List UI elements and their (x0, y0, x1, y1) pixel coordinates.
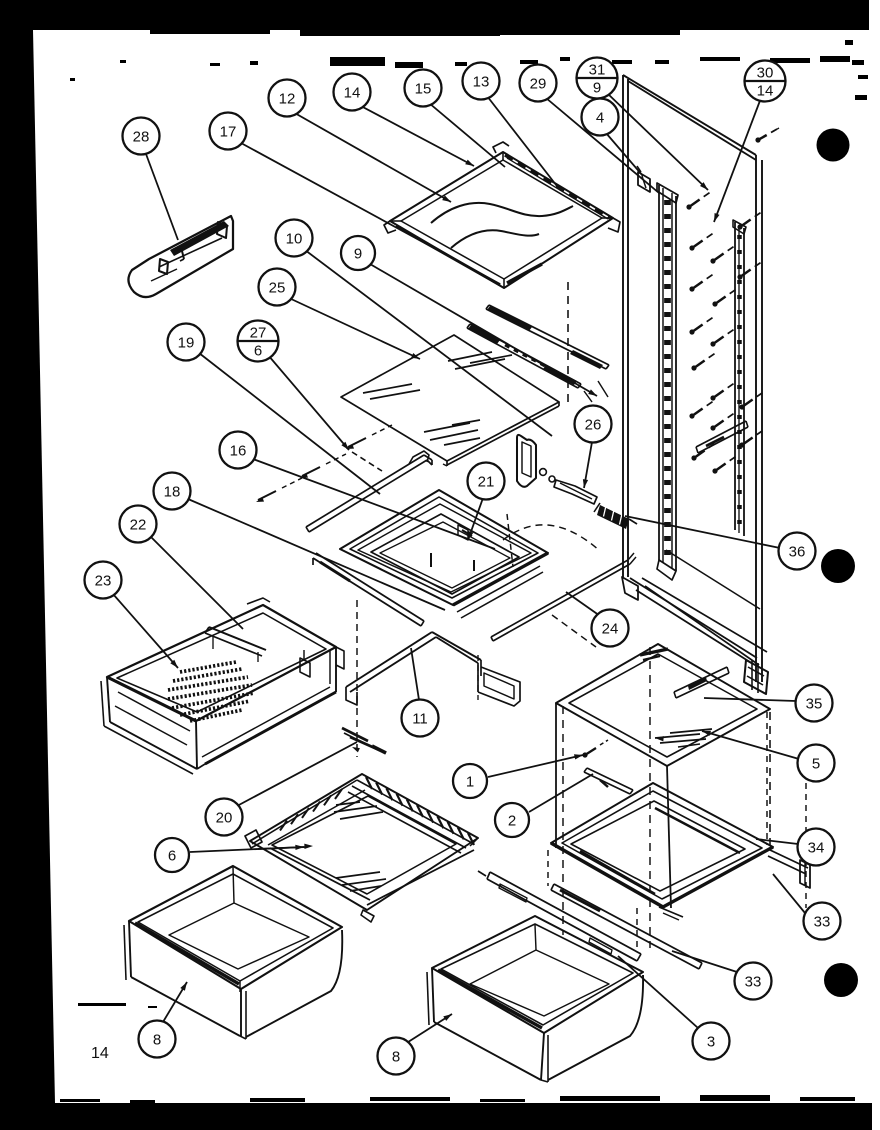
svg-text:10: 10 (286, 231, 303, 248)
svg-text:6: 6 (254, 343, 262, 360)
svg-text:14: 14 (344, 85, 361, 102)
svg-text:31: 31 (589, 62, 606, 79)
svg-text:18: 18 (164, 484, 181, 501)
svg-text:22: 22 (130, 517, 147, 534)
svg-text:27: 27 (250, 325, 267, 342)
svg-text:5: 5 (812, 756, 820, 773)
svg-text:12: 12 (279, 91, 296, 108)
svg-text:13: 13 (473, 74, 490, 91)
svg-text:26: 26 (585, 417, 602, 434)
svg-text:29: 29 (530, 76, 547, 93)
svg-text:11: 11 (412, 711, 428, 728)
svg-text:2: 2 (508, 813, 516, 830)
svg-text:9: 9 (354, 246, 362, 263)
svg-text:17: 17 (220, 124, 237, 141)
svg-text:20: 20 (216, 810, 233, 827)
svg-text:36: 36 (789, 544, 806, 561)
svg-text:1: 1 (466, 774, 474, 791)
svg-text:24: 24 (602, 621, 619, 638)
svg-text:23: 23 (95, 573, 112, 590)
svg-text:8: 8 (392, 1049, 400, 1066)
svg-text:14: 14 (91, 1045, 109, 1062)
svg-text:16: 16 (230, 443, 247, 460)
svg-text:33: 33 (814, 914, 831, 931)
svg-text:14: 14 (757, 83, 774, 100)
svg-text:25: 25 (269, 280, 286, 297)
svg-text:19: 19 (178, 335, 195, 352)
svg-text:15: 15 (415, 81, 432, 98)
svg-text:6: 6 (168, 848, 176, 865)
svg-text:33: 33 (745, 974, 762, 991)
svg-text:4: 4 (596, 110, 604, 127)
svg-text:34: 34 (808, 840, 825, 857)
svg-text:3: 3 (707, 1034, 715, 1051)
svg-text:9: 9 (593, 80, 601, 97)
svg-text:8: 8 (153, 1032, 161, 1049)
svg-text:28: 28 (133, 129, 150, 146)
svg-text:21: 21 (478, 474, 495, 491)
svg-text:30: 30 (757, 65, 774, 82)
svg-text:35: 35 (806, 696, 823, 713)
